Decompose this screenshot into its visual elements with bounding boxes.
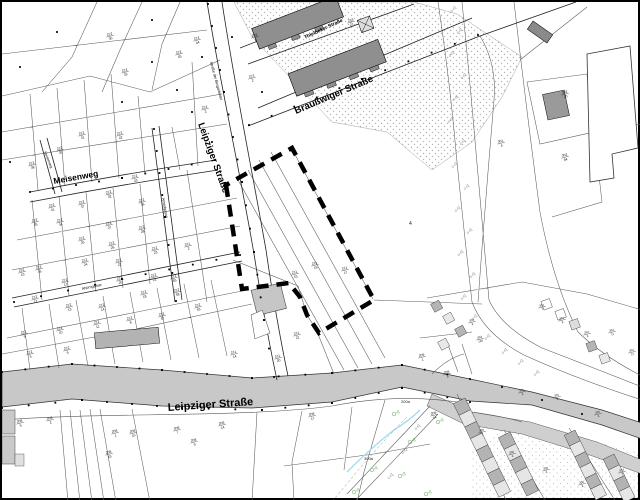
survey-dot xyxy=(168,269,170,271)
tree-icon: o xyxy=(469,272,476,279)
survey-dot xyxy=(501,386,503,388)
survey-dot xyxy=(477,34,479,36)
parcel-label: 21223 xyxy=(150,245,159,255)
survey-dot xyxy=(168,168,170,170)
parcel-label: 21220 xyxy=(115,275,124,285)
survey-dot xyxy=(331,402,333,404)
tree-icon: o xyxy=(457,250,464,257)
building-long-left xyxy=(94,327,159,349)
parcel-label: 21222 xyxy=(114,257,123,267)
survey-dot xyxy=(2,371,3,373)
svg-text:31: 31 xyxy=(80,135,85,140)
svg-text:5: 5 xyxy=(19,424,22,428)
svg-text:16: 16 xyxy=(37,269,42,274)
tree-icon: o xyxy=(454,206,461,213)
parcel-label: 2082 xyxy=(45,415,54,425)
parcel-label: 30412 xyxy=(627,347,636,357)
survey-dot xyxy=(191,111,193,113)
survey-dot xyxy=(156,405,158,407)
plan-area-boundary xyxy=(226,148,374,333)
survey-dot xyxy=(201,56,203,58)
parcel-label: 21244 xyxy=(192,35,201,45)
survey-dot xyxy=(56,31,58,33)
survey-dot xyxy=(116,366,118,368)
svg-text:45: 45 xyxy=(177,54,182,59)
building-in-notch xyxy=(243,283,291,339)
parcel-label: 21228 xyxy=(137,224,146,234)
survey-dot xyxy=(304,374,306,376)
survey-dot xyxy=(48,366,50,368)
survey-dot xyxy=(271,115,273,117)
parcel-label: 21235 xyxy=(30,217,39,227)
cadastral-map: oooooooooooooooooooooo 21230212332123121… xyxy=(0,0,640,500)
svg-text:1: 1 xyxy=(421,358,424,362)
parcel-label: 21232 xyxy=(104,189,113,199)
survey-dot xyxy=(378,392,380,394)
svg-text:55: 55 xyxy=(172,278,177,283)
survey-dot xyxy=(161,369,163,371)
parcel-label: 3039 xyxy=(467,317,476,327)
survey-dot xyxy=(253,251,255,253)
svg-text:34: 34 xyxy=(58,222,63,227)
tree-icon: o xyxy=(463,184,470,191)
svg-text:15: 15 xyxy=(20,272,25,277)
svg-text:7: 7 xyxy=(176,431,179,435)
tree-green-icon xyxy=(370,466,377,472)
area-labels: 4200a300a xyxy=(364,221,412,461)
parcel-label: 21241 xyxy=(47,202,56,212)
survey-dot xyxy=(13,301,15,303)
survey-dot xyxy=(151,19,153,21)
svg-text:32: 32 xyxy=(107,194,112,199)
survey-dot xyxy=(229,375,231,377)
svg-text:27: 27 xyxy=(107,225,112,230)
svg-text:8: 8 xyxy=(561,320,564,324)
svg-text:11: 11 xyxy=(95,324,99,329)
parcel-label: 21226 xyxy=(107,240,116,250)
parcel-label: 2128 xyxy=(125,315,134,325)
svg-text:8: 8 xyxy=(129,321,132,325)
survey-dot xyxy=(151,61,153,63)
survey-dot xyxy=(241,181,243,183)
tree-green-icon xyxy=(352,488,359,494)
survey-dot xyxy=(231,36,233,38)
svg-text:38: 38 xyxy=(30,165,35,170)
survey-dot xyxy=(54,402,56,404)
survey-dot xyxy=(268,348,270,350)
street-label-leipziger-upper: Leipziger Straße xyxy=(195,121,231,194)
tree-icon: o xyxy=(387,473,394,480)
parcel-label: 2091 xyxy=(417,352,426,362)
street-label-meisenweg-lane: Meisenweg xyxy=(43,151,53,169)
parcel-label: 21217 xyxy=(60,277,69,287)
parcel-label: 30411 xyxy=(607,327,616,337)
svg-text:20: 20 xyxy=(276,358,281,363)
parcel-label: 20814 xyxy=(217,420,226,430)
survey-dot xyxy=(216,259,218,261)
tree-icon: o xyxy=(414,424,421,431)
survey-dot xyxy=(581,413,583,415)
survey-dot xyxy=(207,3,209,5)
survey-dot xyxy=(106,401,108,403)
survey-dot xyxy=(331,372,333,374)
survey-dot xyxy=(19,66,21,68)
survey-dot xyxy=(446,396,448,398)
parcel-label: 21211 xyxy=(92,319,101,329)
tree-green-icon xyxy=(436,418,443,424)
svg-text:53: 53 xyxy=(196,307,201,312)
svg-text:4: 4 xyxy=(500,144,503,148)
parcel-label: 30284 xyxy=(560,152,569,162)
survey-dot xyxy=(278,375,280,377)
area-label: 300a xyxy=(364,456,374,461)
svg-text:2: 2 xyxy=(204,110,207,114)
survey-dot xyxy=(156,150,158,152)
survey-dot xyxy=(454,43,456,45)
survey-dot xyxy=(239,254,241,256)
survey-dot xyxy=(469,378,471,380)
survey-dot xyxy=(354,369,356,371)
svg-text:15: 15 xyxy=(293,274,298,279)
survey-dot xyxy=(378,367,380,369)
parcel-label: 21115 xyxy=(290,269,299,279)
survey-dot xyxy=(308,404,310,406)
tree-green-icon xyxy=(398,472,405,478)
parcel-label: 21216 xyxy=(34,264,43,274)
svg-text:57: 57 xyxy=(160,316,165,321)
survey-dot xyxy=(121,177,123,179)
svg-text:10: 10 xyxy=(58,330,63,335)
svg-text:25: 25 xyxy=(80,240,85,245)
svg-text:9: 9 xyxy=(471,322,474,326)
survey-dot xyxy=(211,25,213,27)
survey-dot xyxy=(401,387,403,389)
parcel-label: 21245 xyxy=(174,49,183,59)
map-canvas: oooooooooooooooooooooo 21230212332123121… xyxy=(2,2,640,500)
survey-dot xyxy=(245,204,247,206)
svg-text:35: 35 xyxy=(33,222,38,227)
survey-dot xyxy=(424,369,426,371)
survey-dot xyxy=(408,61,410,63)
svg-text:26: 26 xyxy=(110,245,115,250)
parcel-label: 21215 xyxy=(17,267,26,277)
tree-icon: o xyxy=(501,348,508,355)
parcel-label: 21231 xyxy=(77,130,86,140)
survey-dot xyxy=(121,101,123,103)
survey-dot xyxy=(24,368,26,370)
survey-dot xyxy=(139,368,141,370)
survey-dot xyxy=(228,114,230,116)
svg-text:14: 14 xyxy=(232,354,237,359)
svg-text:18: 18 xyxy=(142,294,147,299)
survey-dot xyxy=(131,403,133,405)
svg-text:9: 9 xyxy=(193,443,196,447)
survey-dot xyxy=(256,274,258,276)
parcel-label: 21230 xyxy=(105,31,114,41)
street-label-amselgasse: Amselgasse xyxy=(161,197,169,218)
parcel-label: 2081 xyxy=(110,428,119,438)
survey-dot xyxy=(206,373,208,375)
svg-text:41: 41 xyxy=(50,207,55,212)
parcel-label: 21117 xyxy=(340,265,349,275)
survey-dot xyxy=(52,188,54,190)
survey-dot xyxy=(237,159,239,161)
svg-text:20: 20 xyxy=(563,94,568,99)
tree-icon: o xyxy=(460,294,467,301)
parcel-label: 2132 xyxy=(247,73,256,83)
survey-dot xyxy=(67,290,69,292)
survey-dot xyxy=(71,363,73,365)
survey-dot xyxy=(153,128,155,130)
survey-dot xyxy=(215,47,217,49)
parcel-label: 21243 xyxy=(130,173,139,183)
svg-text:58: 58 xyxy=(175,292,180,297)
survey-dot xyxy=(384,69,386,71)
svg-text:1: 1 xyxy=(114,434,117,438)
tree-green-icon xyxy=(424,490,431,496)
survey-dot xyxy=(469,401,471,403)
parcel-label: 20819 xyxy=(104,449,113,459)
svg-text:9: 9 xyxy=(586,334,589,338)
parcel-label: 2126 xyxy=(62,345,71,355)
survey-dot xyxy=(2,407,3,409)
svg-text:23: 23 xyxy=(153,250,158,255)
svg-text:13: 13 xyxy=(67,307,72,312)
area-label: 200a xyxy=(401,399,411,404)
svg-text:17: 17 xyxy=(63,282,68,287)
svg-text:24: 24 xyxy=(83,262,88,267)
parcel-label: 20817 xyxy=(307,411,316,421)
svg-text:44: 44 xyxy=(195,40,200,45)
tree-icon: o xyxy=(484,334,491,341)
survey-dot xyxy=(184,371,186,373)
survey-dot xyxy=(401,364,403,366)
parcel-label: 21218 xyxy=(139,289,148,299)
svg-text:14: 14 xyxy=(220,425,225,430)
survey-dot xyxy=(354,397,356,399)
survey-dot xyxy=(431,52,433,54)
survey-dot xyxy=(541,399,543,401)
parcel-label: 21213 xyxy=(64,302,73,312)
svg-text:2: 2 xyxy=(481,432,484,436)
survey-dot xyxy=(94,365,96,367)
tree-green-icon xyxy=(392,410,399,416)
survey-dot xyxy=(223,91,225,93)
svg-text:139: 139 xyxy=(478,339,484,344)
parcel-label: 2085 xyxy=(15,418,24,428)
svg-text:12: 12 xyxy=(631,352,635,357)
survey-dot xyxy=(424,392,426,394)
parcel-label: 20810 xyxy=(128,428,137,438)
survey-dot xyxy=(232,136,234,138)
parcel-label: 21253 xyxy=(193,302,202,312)
survey-dot xyxy=(175,300,177,302)
svg-text:14: 14 xyxy=(100,307,105,312)
svg-text:10: 10 xyxy=(131,433,136,438)
svg-text:2: 2 xyxy=(251,79,254,83)
svg-text:84: 84 xyxy=(563,157,568,162)
stream-line xyxy=(347,410,420,472)
parcel-label: 21225 xyxy=(77,235,86,245)
svg-text:5: 5 xyxy=(29,355,32,359)
survey-dot xyxy=(192,264,194,266)
survey-dot xyxy=(9,161,11,163)
parcel-label: 21237 xyxy=(77,199,86,209)
survey-dot xyxy=(260,296,262,298)
tree-icon: o xyxy=(450,6,457,13)
svg-text:21: 21 xyxy=(295,335,300,340)
svg-text:42: 42 xyxy=(118,135,123,140)
survey-dot xyxy=(251,377,253,379)
survey-dot xyxy=(29,191,31,193)
parcel-label: 21221 xyxy=(149,272,158,282)
parcel-label: 21257 xyxy=(157,311,166,321)
survey-dot xyxy=(284,407,286,409)
parcel-label: 21120 xyxy=(273,353,282,363)
parcel-label: 3014 xyxy=(496,138,505,148)
survey-dot xyxy=(191,164,193,166)
svg-text:33: 33 xyxy=(123,72,128,77)
svg-text:19: 19 xyxy=(107,454,112,459)
survey-dot xyxy=(75,184,77,186)
svg-text:37: 37 xyxy=(80,204,85,209)
survey-dot xyxy=(176,89,178,91)
svg-text:30: 30 xyxy=(108,36,113,41)
parcel-label: 21116 xyxy=(310,260,319,270)
survey-dot xyxy=(219,69,221,71)
survey-dot xyxy=(28,404,30,406)
parcel-label: 21233 xyxy=(120,67,129,77)
survey-dot xyxy=(261,91,263,93)
parcel-label: 2112 xyxy=(183,241,192,251)
svg-text:2: 2 xyxy=(49,421,52,425)
survey-dot xyxy=(248,124,250,126)
parcel-label: 2087 xyxy=(172,425,181,435)
svg-text:36: 36 xyxy=(140,202,145,207)
svg-text:16: 16 xyxy=(313,265,318,270)
parcel-label: 2089 xyxy=(189,437,198,447)
survey-dot xyxy=(98,181,100,183)
area-label: 4 xyxy=(409,221,412,227)
parcel-label: 21234 xyxy=(55,217,64,227)
svg-text:12: 12 xyxy=(33,299,38,304)
survey-dot xyxy=(161,194,163,196)
tree-icon: o xyxy=(533,370,540,377)
parcel-label: 20914 xyxy=(429,410,438,420)
parcel-label: 21114 xyxy=(229,349,238,359)
survey-dot xyxy=(249,228,251,230)
parcel-label: 21121 xyxy=(292,330,301,340)
survey-dot xyxy=(168,244,170,246)
survey-dot xyxy=(159,172,161,174)
survey-dot xyxy=(145,273,147,275)
parcel-label: 2142 xyxy=(200,104,209,114)
survey-dot xyxy=(40,295,42,297)
survey-dot xyxy=(263,319,265,321)
survey-dot xyxy=(273,376,275,378)
parcel-label: 21255 xyxy=(169,273,178,283)
parcel-label: 21239 xyxy=(55,145,64,155)
parcel-label: 2125 xyxy=(25,349,34,359)
building-slanted-dark xyxy=(527,21,552,43)
tree-icon: o xyxy=(517,359,524,366)
parcel-label: 21236 xyxy=(137,197,146,207)
parcel-label: 2129 xyxy=(19,329,28,339)
svg-text:17: 17 xyxy=(343,270,348,275)
svg-text:17: 17 xyxy=(310,416,315,421)
svg-text:6: 6 xyxy=(66,351,69,355)
parcel-label: 21224 xyxy=(80,257,89,267)
survey-dot xyxy=(261,409,263,411)
survey-dot xyxy=(144,173,146,175)
building-outline-right xyxy=(587,46,638,182)
svg-text:11: 11 xyxy=(611,332,615,337)
svg-text:2: 2 xyxy=(187,247,190,251)
tree-green-icon xyxy=(408,438,415,444)
tree-icon: o xyxy=(466,228,473,235)
parcel-label: 21242 xyxy=(115,130,124,140)
survey-dot xyxy=(81,399,83,401)
svg-text:22: 22 xyxy=(117,262,122,267)
